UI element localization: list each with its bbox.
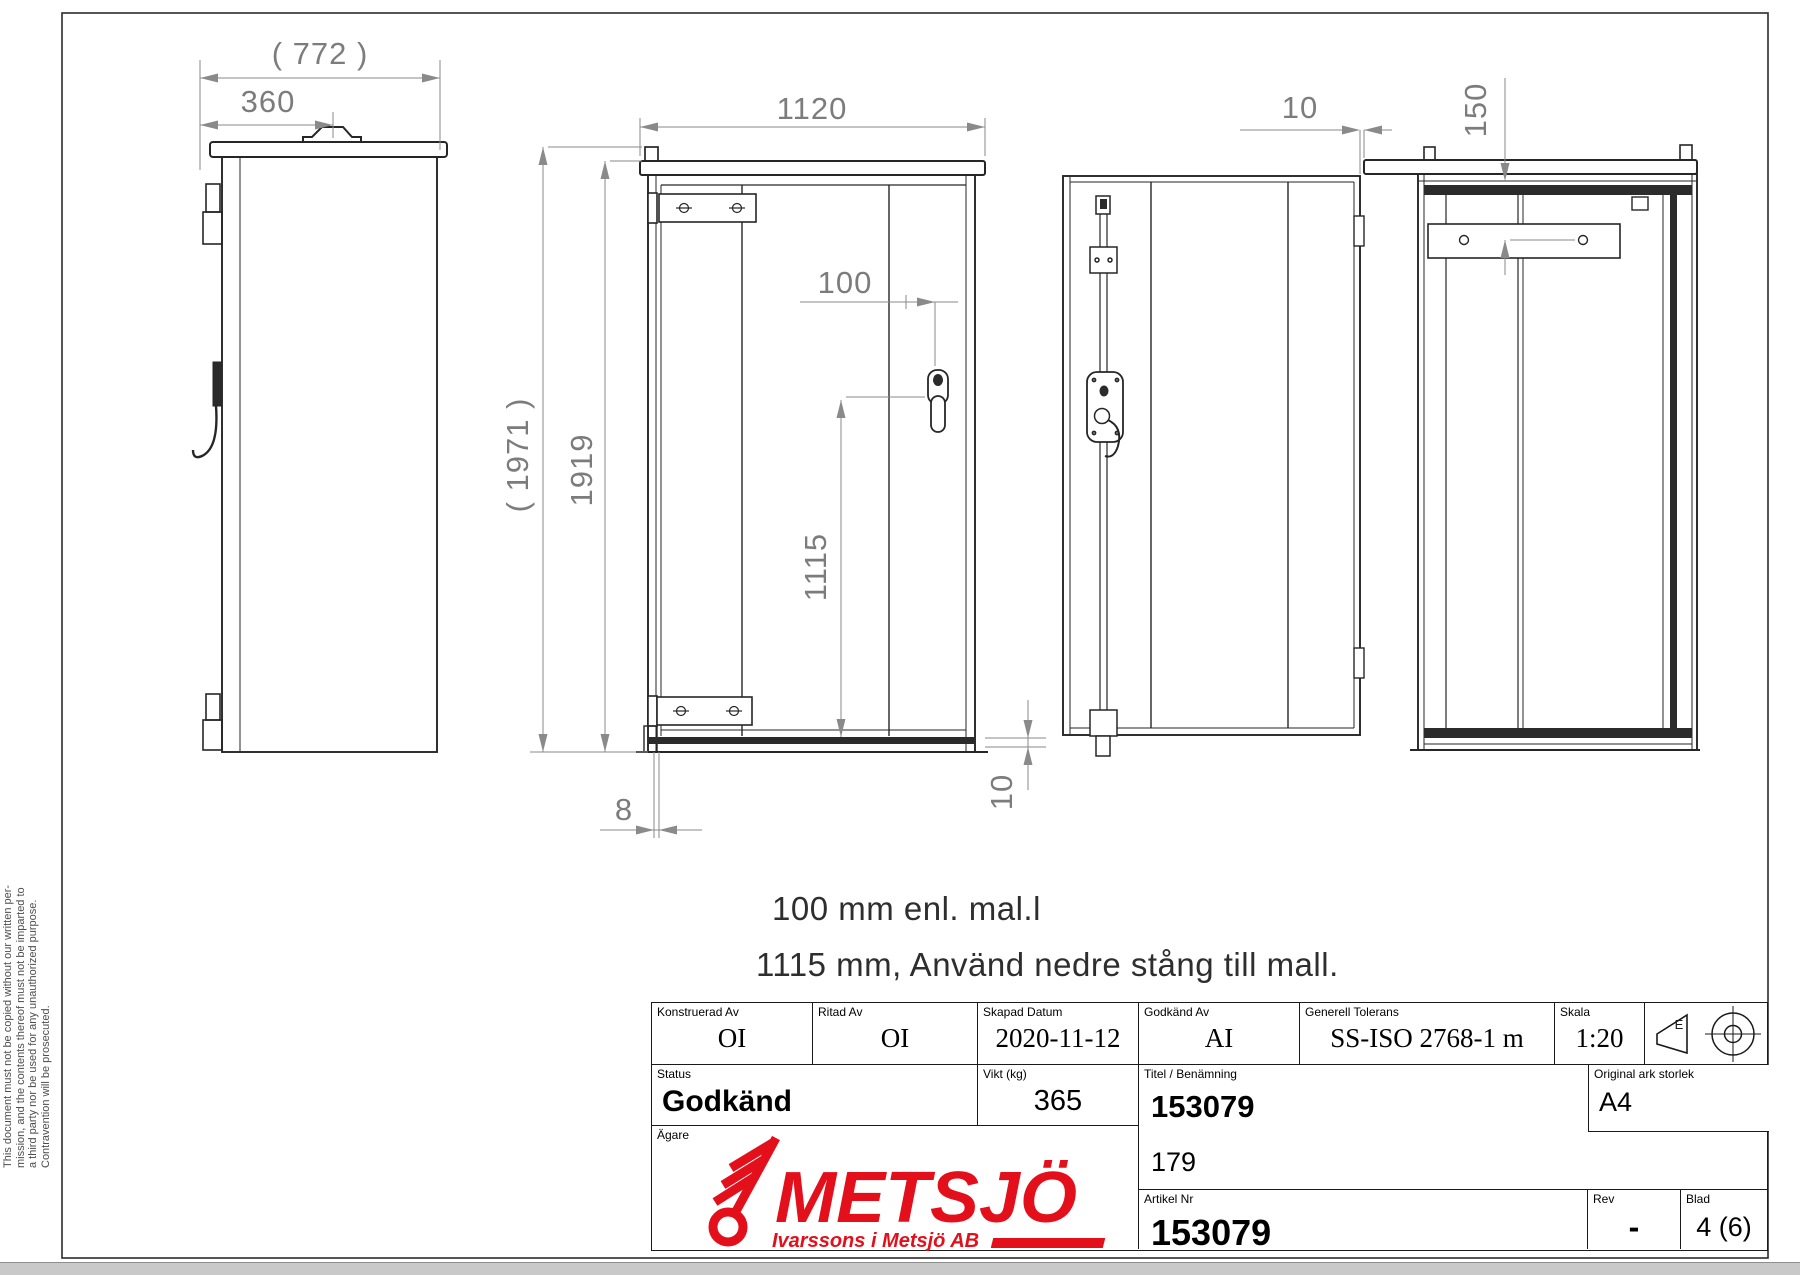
open-view-right-band (1670, 195, 1677, 738)
dim-body-height (601, 161, 643, 752)
disclaimer-line-1: This document must not be copied without… (2, 768, 15, 1168)
titleblock-cell-ark: Original ark storlek A4 (1588, 1065, 1769, 1132)
titel-value2: 179 (1139, 1125, 1768, 1178)
dim-sill-height-label: 10 (984, 774, 1019, 810)
titleblock-cell-vikt: Vikt (kg) 365 (978, 1065, 1139, 1126)
dim-door-bottom-gap-label: 8 (615, 792, 633, 827)
side-view-latch (213, 362, 222, 406)
open-view-pin-right (1680, 145, 1692, 160)
dim-front-width-label: 1120 (777, 91, 848, 126)
drawing-sheet: ( 772 ) 360 (0, 0, 1800, 1275)
dim-plate-offset-label: 150 (1458, 83, 1493, 138)
dim-total-height-label: ( 1971 ) (500, 398, 535, 513)
open-view-pin-left (1424, 147, 1435, 160)
dim-rod-to-bottom (837, 397, 926, 737)
front-view (636, 147, 988, 752)
ritad-value: OI (813, 1019, 977, 1064)
titleblock-cell-blad: Blad 4 (6) (1681, 1190, 1767, 1249)
espagnolette-lock (1087, 372, 1123, 457)
metsjo-logo: METSJÖ Ivarssons i Metsjö AB (652, 1126, 1139, 1248)
disclaimer-line-4: Contravention will be prosecuted. (40, 768, 53, 1168)
ark-value: A4 (1589, 1081, 1769, 1118)
tolerans-label: Generell Tolerans (1300, 1003, 1554, 1019)
dim-hinge-gap (1240, 126, 1392, 175)
open-view-body (1418, 174, 1697, 750)
titleblock-cell-status: Status Godkänd (652, 1065, 978, 1126)
ritad-label: Ritad Av (813, 1003, 977, 1019)
side-view-handle-bump (303, 127, 361, 142)
metsjo-underline (991, 1238, 1105, 1248)
skapad-label: Skapad Datum (978, 1003, 1138, 1019)
dim-body-height-label: 1919 (564, 434, 599, 507)
title-block: Konstruerad Av OI Ritad Av OI Skapad Dat… (651, 1002, 1768, 1251)
side-view-latch-hook (193, 406, 216, 457)
open-door-view (1063, 176, 1364, 756)
konstruerad-value: OI (652, 1019, 812, 1064)
titleblock-cell-ritad: Ritad Av OI (813, 1003, 978, 1065)
rod-guide-top (1090, 247, 1117, 273)
godkand-av-label: Godkänd Av (1139, 1003, 1299, 1019)
blad-label: Blad (1681, 1190, 1767, 1206)
konstruerad-label: Konstruerad Av (652, 1003, 812, 1019)
target-circle-icon (1705, 1006, 1761, 1062)
mounting-plate (1428, 224, 1620, 258)
titleblock-cell-rev: Rev - (1588, 1190, 1681, 1249)
door-hinge-top (1354, 216, 1364, 246)
titleblock-cell-skapad: Skapad Datum 2020-11-12 (978, 1003, 1139, 1065)
rev-value: - (1588, 1206, 1680, 1249)
vikt-value: 365 (978, 1081, 1138, 1125)
status-value: Godkänd (652, 1081, 977, 1119)
titleblock-cell-skala: Skala 1:20 (1555, 1003, 1645, 1065)
open-view-lid (1364, 160, 1697, 174)
disclaimer-line-2: mission, and the contents thereof must n… (15, 768, 28, 1168)
metsjo-wordmark: METSJÖ (775, 1162, 1077, 1234)
open-view-bottom-band (1424, 728, 1692, 738)
note-line-2: 1115 mm, Använd nedre stång till mall. (756, 946, 1339, 984)
skala-label: Skala (1555, 1003, 1644, 1019)
cabinet-open-view (1364, 145, 1700, 750)
disclaimer-text: This document must not be copied without… (2, 768, 54, 1168)
skala-value: 1:20 (1555, 1019, 1644, 1064)
front-view-lid-knob (645, 147, 658, 161)
godkand-av-value: AI (1139, 1019, 1299, 1064)
door-hinge-bottom (1354, 648, 1364, 678)
rev-label: Rev (1588, 1190, 1680, 1206)
artikel-label: Artikel Nr (1139, 1190, 1587, 1206)
dim-side-total-width (200, 60, 440, 170)
side-view-hinge-top (203, 184, 222, 244)
titleblock-cell-godkand-av: Godkänd Av AI (1139, 1003, 1300, 1065)
side-view-lid (210, 142, 447, 157)
side-view-body (222, 157, 437, 752)
projection-symbol: E (1645, 1003, 1767, 1063)
dim-hinge-gap-label: 10 (1282, 90, 1318, 125)
front-view-body (648, 175, 975, 752)
artikel-value: 153079 (1139, 1206, 1587, 1254)
skapad-value: 2020-11-12 (978, 1019, 1138, 1064)
espagnolette-rod (1100, 214, 1107, 740)
dim-handle-offset-label: 100 (818, 265, 873, 300)
dim-side-total-width-label: ( 772 ) (272, 36, 369, 71)
dim-rod-to-bottom-label: 1115 (798, 533, 833, 601)
rod-bottom-tip (1096, 736, 1110, 756)
titleblock-cell-konstruerad: Konstruerad Av OI (652, 1003, 813, 1065)
latch-keeper (1632, 197, 1648, 210)
vikt-label: Vikt (kg) (978, 1065, 1138, 1081)
metsjo-subtitle: Ivarssons i Metsjö AB (772, 1230, 979, 1253)
titleblock-cell-agare: Ägare METSJÖ Ivarssons i Metsjö AB (652, 1126, 1139, 1249)
blad-value: 4 (6) (1681, 1206, 1767, 1249)
front-view-handle (928, 370, 948, 432)
front-view-lid (640, 161, 985, 175)
side-view-hinge-bottom (203, 694, 222, 750)
tolerans-value: SS-ISO 2768-1 m (1300, 1019, 1554, 1064)
note-line-1: 100 mm enl. mal.l (772, 890, 1041, 928)
titleblock-cell-artikel: Artikel Nr 153079 (1139, 1190, 1588, 1249)
open-view-top-band (1424, 185, 1692, 195)
dim-side-handle-x-label: 360 (241, 84, 296, 119)
front-view-sill (648, 737, 975, 744)
titleblock-cell-tolerans: Generell Tolerans SS-ISO 2768-1 m (1300, 1003, 1555, 1065)
ark-label: Original ark storlek (1589, 1065, 1769, 1081)
dim-handle-offset (800, 295, 958, 366)
status-label: Status (652, 1065, 977, 1081)
side-view (193, 127, 447, 752)
rod-guide-bottom (1090, 710, 1117, 736)
titleblock-cell-projection: E (1645, 1003, 1768, 1065)
disclaimer-line-3: a third party nor be used for any unauth… (27, 768, 40, 1168)
window-bottom-bar (0, 1262, 1800, 1275)
projection-letter: E (1675, 1017, 1684, 1032)
